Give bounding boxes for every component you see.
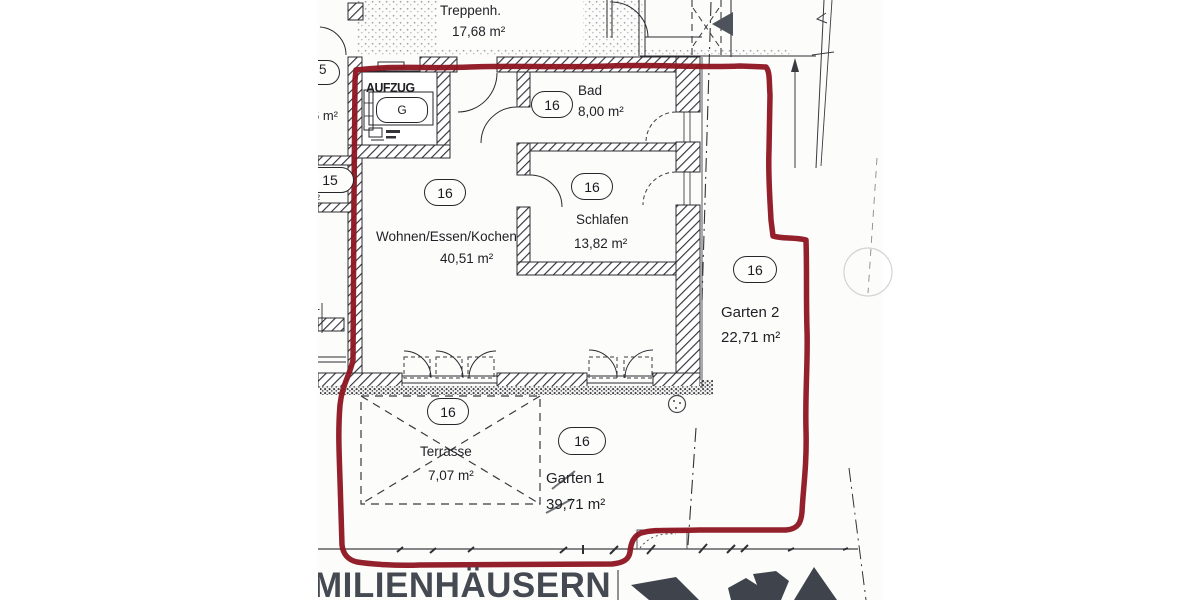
aufzug-label: AUFZUG <box>366 80 415 95</box>
unit-tag-terrasse: 16 <box>427 398 469 425</box>
unit-tag-schlafen: 16 <box>571 173 613 200</box>
wohnen-area: 40,51 m² <box>440 251 493 266</box>
garten2-label: Garten 2 <box>721 304 779 321</box>
garten1-area: 39,71 m² <box>546 496 605 513</box>
schlafen-area: 13,82 m² <box>574 236 627 251</box>
bad-door-arc <box>481 107 517 143</box>
garten2-area: 22,71 m² <box>721 329 780 346</box>
unit-tag-garten1: 16 <box>558 427 606 455</box>
treppenhaus-label: Treppenh. <box>440 3 501 18</box>
schlafen-door-arc <box>530 175 562 207</box>
walls <box>318 3 700 387</box>
logo-shape-1 <box>631 577 699 600</box>
entrance-door-arc <box>458 73 497 112</box>
unit-tag-garten2: 16 <box>733 256 777 283</box>
unit-tag-bad: 16 <box>531 91 573 118</box>
footer-headline: MILIENHÄUSERN <box>313 566 611 600</box>
terrasse-label: Terrasse <box>420 444 472 459</box>
floorplan-scan: Treppenh. 17,68 m² AUFZUG G 16 Bad 8,00 … <box>0 0 1200 600</box>
logo <box>618 567 837 600</box>
direction-arrow-icon <box>712 12 733 36</box>
elevator-car: G <box>376 97 428 123</box>
bad-area: 8,00 m² <box>578 104 624 119</box>
logo-shape-3 <box>794 567 837 600</box>
treppenhaus-area: 17,68 m² <box>452 24 505 39</box>
schlafen-label: Schlafen <box>576 212 629 227</box>
neighbor-unit5-digit: 5 <box>319 62 327 77</box>
neighbor-door-arc <box>320 27 346 55</box>
bad-label: Bad <box>578 83 602 98</box>
terrasse-area: 7,07 m² <box>428 468 474 483</box>
unit-tag-wohnen: 16 <box>424 179 466 206</box>
logo-shape-2 <box>728 571 789 600</box>
scan-left-margin <box>0 0 318 600</box>
wohnen-label: Wohnen/Essen/Kochen <box>376 229 517 244</box>
garten1-label: Garten 1 <box>546 470 604 487</box>
elevator-car-label: G <box>397 103 406 117</box>
